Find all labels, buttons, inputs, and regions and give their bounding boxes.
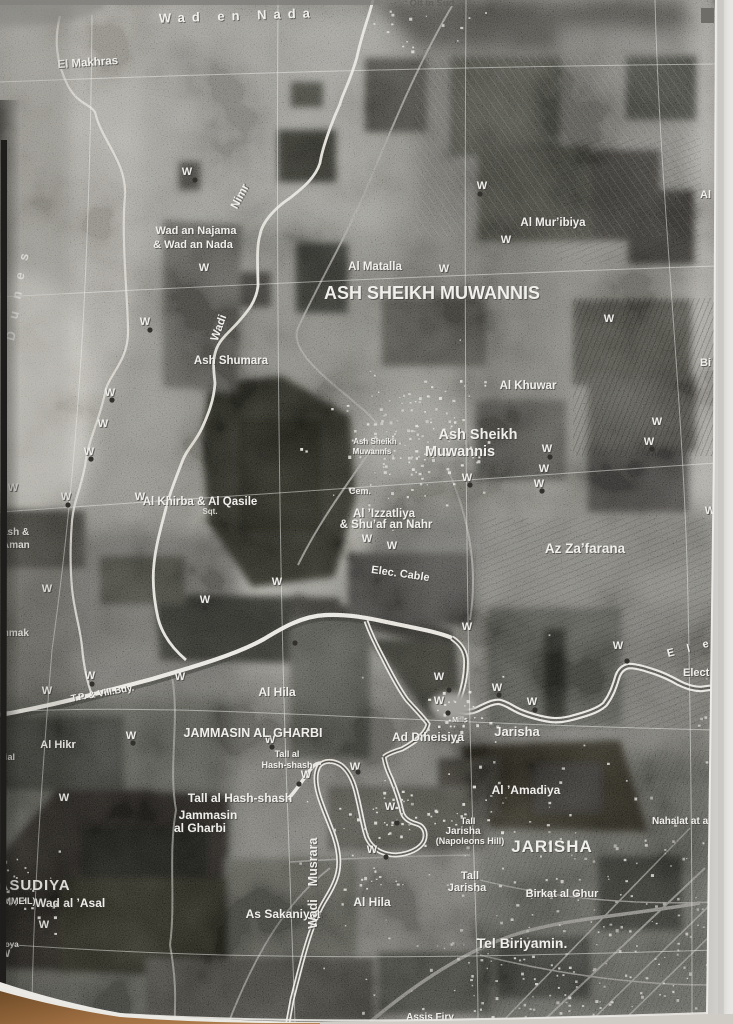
svg-text:W: W	[105, 387, 116, 399]
svg-text:W: W	[175, 671, 186, 683]
svg-text:Sqt.: Sqt.	[202, 507, 217, 516]
svg-text:Elect: Elect	[683, 667, 710, 679]
svg-text:W: W	[182, 166, 193, 178]
svg-text:W: W	[434, 671, 445, 683]
svg-text:Tall al: Tall al	[275, 749, 300, 759]
svg-text:Tel Biriyamin.: Tel Biriyamin.	[477, 935, 568, 951]
svg-text:Al: Al	[700, 189, 711, 201]
svg-text:W: W	[387, 540, 398, 552]
svg-text:JAMMASIN AL GHARBI: JAMMASIN AL GHARBI	[184, 726, 323, 740]
svg-text:W: W	[439, 263, 450, 275]
svg-text:W: W	[367, 844, 378, 856]
svg-text:W: W	[462, 472, 473, 484]
svg-text:W: W	[527, 696, 538, 708]
svg-text:Al Khuwar: Al Khuwar	[500, 380, 557, 392]
svg-text:Tall al Hash-shash: Tall al Hash-shash	[188, 791, 292, 805]
svg-text:Bi: Bi	[700, 357, 711, 369]
svg-text:W: W	[492, 682, 503, 694]
svg-text:Birkat al Ghur: Birkat al Ghur	[526, 888, 599, 900]
svg-text:W: W	[652, 416, 663, 428]
svg-text:Tall: Tall	[461, 870, 479, 882]
svg-text:W: W	[539, 463, 550, 475]
svg-text:Jammasin: Jammasin	[179, 808, 238, 822]
svg-text:W: W	[542, 443, 553, 455]
svg-text:W: W	[462, 621, 473, 633]
svg-text:W: W	[604, 313, 615, 325]
svg-text:Al Khirba & Al Qasile: Al Khirba & Al Qasile	[143, 496, 258, 508]
svg-text:Mills: Mills	[452, 717, 468, 724]
svg-text:Muwannis: Muwannis	[425, 444, 495, 460]
svg-text:Az Zaʼfarana: Az Zaʼfarana	[545, 541, 626, 556]
svg-text:Wadi: Wadi	[306, 899, 320, 928]
svg-text:W: W	[613, 640, 624, 652]
svg-text:(Napoleons Hill): (Napoleons Hill)	[436, 836, 505, 846]
svg-text:Wad an Najama: Wad an Najama	[156, 225, 238, 237]
svg-text:Hash-shash: Hash-shash	[261, 760, 312, 770]
svg-text:W: W	[140, 316, 151, 328]
svg-text:al Gharbi: al Gharbi	[174, 821, 226, 835]
svg-text:W: W	[477, 180, 488, 192]
svg-text:Ash Sheikh: Ash Sheikh	[353, 437, 397, 446]
svg-text:W: W	[362, 533, 373, 545]
svg-text:W: W	[534, 478, 545, 490]
svg-text:W: W	[199, 262, 210, 274]
svg-text:Al Hila: Al Hila	[353, 895, 391, 909]
svg-text:W: W	[200, 594, 211, 606]
svg-text:Al Murʼibiya: Al Murʼibiya	[520, 217, 586, 229]
svg-text:W: W	[85, 670, 96, 682]
svg-text:Cem.: Cem.	[349, 486, 371, 496]
svg-text:W: W	[84, 446, 95, 458]
svg-text:Jarisha: Jarisha	[494, 724, 540, 739]
svg-text:W: W	[434, 695, 445, 707]
svg-text:Jarisha: Jarisha	[448, 882, 487, 894]
svg-text:& Wad an Nada: & Wad an Nada	[153, 239, 234, 251]
svg-text:W: W	[385, 801, 396, 813]
svg-text:W: W	[501, 234, 512, 246]
svg-text:Al Hila: Al Hila	[258, 685, 296, 699]
svg-text:W: W	[644, 436, 655, 448]
svg-text:Nahalat at a: Nahalat at a	[652, 816, 709, 827]
svg-text:Ash Shumara: Ash Shumara	[194, 355, 269, 367]
svg-text:W: W	[98, 418, 109, 430]
svg-text:Qit in Sud: Qit in Sud	[410, 0, 455, 9]
svg-text:& Shuʼaf an Nahr: & Shuʼaf an Nahr	[340, 519, 433, 531]
svg-text:ASH SHEIKH MUWANNIS: ASH SHEIKH MUWANNIS	[324, 283, 540, 303]
svg-text:Muwannis: Muwannis	[353, 447, 392, 456]
svg-text:Musrara: Musrara	[306, 837, 320, 887]
svg-text:Ad Diheisiya: Ad Diheisiya	[392, 730, 464, 744]
svg-text:JARISHA: JARISHA	[511, 837, 593, 856]
svg-text:Tall: Tall	[461, 816, 476, 826]
svg-text:W: W	[272, 576, 283, 588]
svg-text:Ash Sheikh: Ash Sheikh	[439, 427, 518, 443]
svg-text:Al ʼAmadiya: Al ʼAmadiya	[492, 783, 561, 797]
svg-text:W: W	[126, 730, 137, 742]
svg-text:Al Matalla: Al Matalla	[348, 261, 402, 273]
